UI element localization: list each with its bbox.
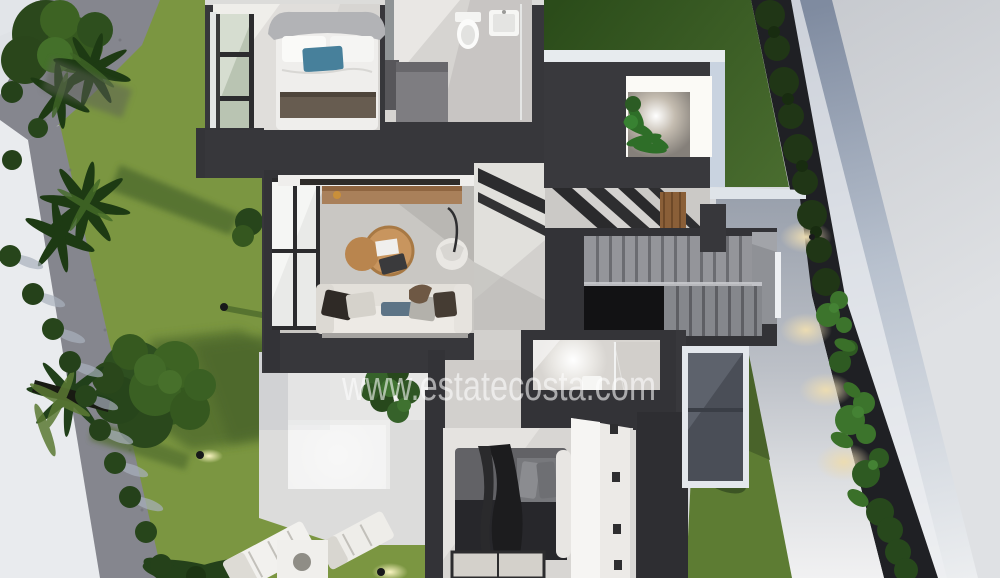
svg-text:www.estatecosta.com: www.estatecosta.com — [341, 362, 656, 409]
